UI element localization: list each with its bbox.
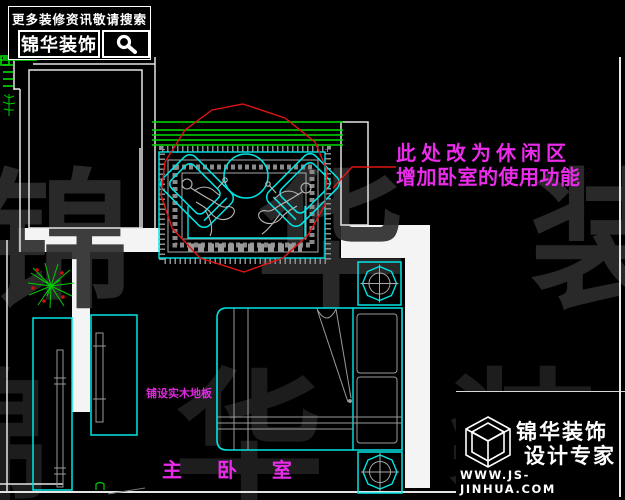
company-logo-block: 锦华装饰 设计专家 WWW.JS-JINHUA.COM [456,391,625,500]
footer-subtitle: 设计专家 [524,440,616,470]
nightstand-top [358,262,401,305]
cube-logo-icon [462,414,514,470]
search-tagline: 更多装修资讯敬请搜索 [9,9,150,28]
plant-sprig-icon [3,94,15,116]
floor-note-label: 铺设实木地板 [146,385,212,401]
search-button [102,30,150,58]
lamp-symbol [361,265,399,303]
footer-website: WWW.JS-JINHUA.COM [460,468,625,496]
wardrobe-right [91,315,137,435]
lamp-symbol [361,453,399,491]
annotation-line-2: 增加卧室的使用功能 [396,161,581,190]
sheet-right-border [619,57,621,497]
pillow-bottom [357,377,397,443]
door-swing-mark [96,483,104,491]
pillow-top [357,314,397,373]
leader-line [333,167,396,188]
lounge-chair-right [263,150,342,229]
brand-name: 锦华装饰 [18,30,100,58]
nightstand-bottom [358,452,402,493]
wardrobe-left [33,318,72,490]
blanket-fold [317,309,351,402]
room-name-label: 主 卧 室 [162,454,306,483]
bed [217,308,402,450]
search-brand-badge: 更多装修资讯敬请搜索 锦华装饰 [8,6,151,60]
plant-icon [28,263,74,308]
rug [159,149,328,261]
round-table [224,154,268,198]
cad-floorplan-screenshot: 锦 华 装 饰 锦 华 装 饰 [0,0,625,500]
search-icon [113,34,139,54]
